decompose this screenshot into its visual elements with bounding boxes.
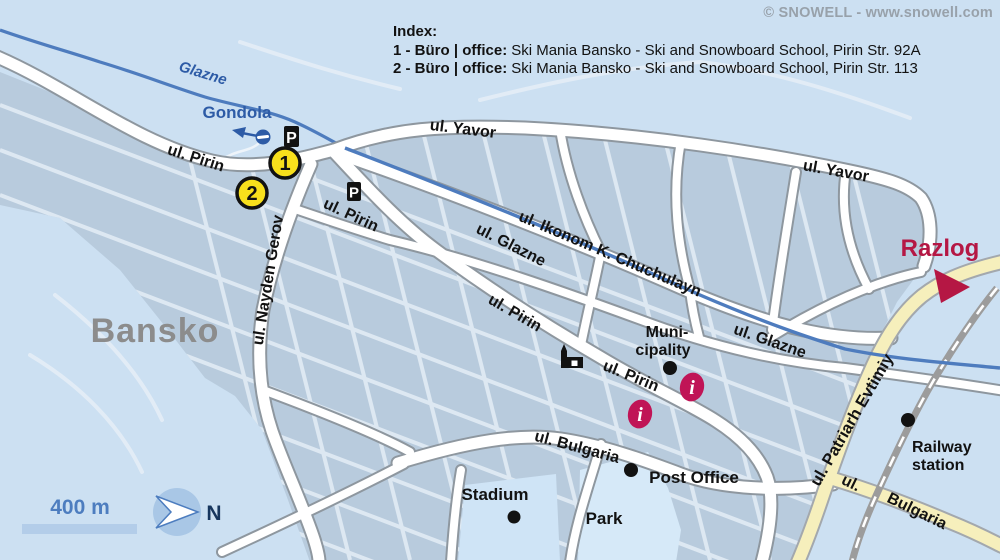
municipality-label-line1: Muni- [646, 324, 689, 341]
office-marker-2: 2 [237, 178, 267, 208]
map-canvas: ul. Pirin ul. Pirin ul. Pirin ul. Pirin … [0, 0, 1000, 560]
gondola-icon [232, 127, 271, 145]
municipality-label-line2: cipality [635, 342, 690, 359]
town-label: Bansko [91, 312, 220, 350]
index-item-2: 2 - Büro | office:Ski Mania Bansko - Ski… [393, 60, 921, 79]
parking-glyph: P [349, 185, 359, 202]
bansko-town-map: ul. Pirin ul. Pirin ul. Pirin ul. Pirin … [0, 0, 1000, 560]
index-item-1-text: Ski Mania Bansko - Ski and Snowboard Sch… [511, 42, 920, 59]
office-marker-1: 1 [270, 148, 300, 178]
scale-bar: 400 m [22, 496, 137, 534]
index-item-2-text: Ski Mania Bansko - Ski and Snowboard Sch… [511, 60, 918, 77]
post-office-dot [624, 463, 638, 477]
info-glyph: i [689, 377, 695, 399]
attribution-text: © SNOWELL - www.snowell.com [763, 5, 993, 21]
index-legend: Index: 1 - Büro | office:Ski Mania Bansk… [393, 23, 921, 79]
parking-glyph: P [286, 130, 297, 147]
river-label: Glazne [177, 58, 229, 89]
railway-station-label-line2: station [912, 457, 964, 474]
index-item-1-label: 1 - Büro | office: [393, 42, 507, 59]
info-glyph: i [637, 404, 643, 426]
municipality-dot [663, 361, 677, 375]
marker-number: 2 [246, 183, 257, 205]
gondola-label: Gondola [203, 103, 272, 122]
stadium-label: Stadium [461, 485, 528, 504]
park-label: Park [586, 509, 623, 528]
post-office-label: Post Office [649, 468, 739, 487]
index-heading: Index: [393, 23, 921, 42]
index-item-2-label: 2 - Büro | office: [393, 60, 507, 77]
north-arrow: N [153, 488, 222, 536]
scale-label: 400 m [50, 496, 110, 519]
parking-icon-1: P [284, 126, 299, 147]
copyright-attribution: © SNOWELL - www.snowell.com [763, 5, 993, 21]
railway-station-label-line1: Railway [912, 439, 972, 456]
railway-station-dot [901, 413, 915, 427]
marker-number: 1 [279, 153, 290, 175]
razlog-label: Razlog [901, 235, 980, 262]
north-label: N [206, 502, 221, 525]
stadium-dot [508, 511, 521, 524]
index-item-1: 1 - Büro | office:Ski Mania Bansko - Ski… [393, 42, 921, 61]
parking-icon-2: P [347, 182, 361, 202]
